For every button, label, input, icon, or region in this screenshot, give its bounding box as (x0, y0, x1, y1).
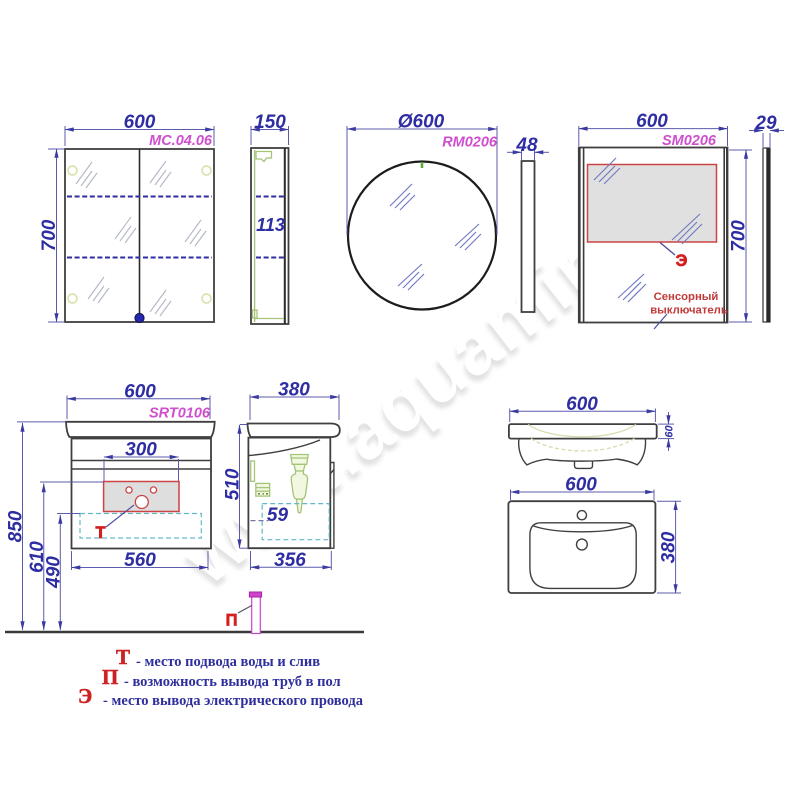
svg-text:SM0206: SM0206 (662, 133, 717, 149)
svg-text:600: 600 (124, 381, 156, 402)
svg-text:- место вывода электрического: - место вывода электрического провода (103, 693, 364, 709)
svg-text:356: 356 (274, 550, 306, 571)
svg-text:П: П (102, 665, 118, 689)
svg-text:300: 300 (125, 439, 157, 460)
svg-text:выключатель: выключатель (650, 305, 728, 317)
svg-text:- место подвода воды и слив: - место подвода воды и слив (136, 654, 320, 670)
svg-text:Ø600: Ø600 (398, 112, 445, 133)
svg-text:490: 490 (43, 556, 64, 589)
svg-text:59: 59 (267, 505, 289, 526)
svg-text:850: 850 (6, 510, 27, 542)
svg-text:600: 600 (124, 112, 156, 133)
svg-text:510: 510 (222, 468, 243, 500)
svg-text:48: 48 (515, 135, 538, 156)
svg-text:380: 380 (278, 379, 310, 400)
svg-text:Э: Э (676, 252, 688, 270)
svg-text:600: 600 (566, 394, 598, 415)
svg-text:700: 700 (39, 219, 60, 251)
svg-text:700: 700 (729, 220, 750, 252)
svg-text:29: 29 (754, 113, 777, 134)
svg-text:600: 600 (565, 474, 597, 495)
svg-text:RM0206: RM0206 (442, 135, 498, 151)
svg-text:MC.04.06: MC.04.06 (149, 133, 213, 149)
svg-text:Э: Э (78, 684, 92, 708)
svg-text:- возможность вывода труб в по: - возможность вывода труб в пол (124, 674, 341, 690)
svg-text:113: 113 (256, 215, 285, 235)
svg-text:SRT0106: SRT0106 (149, 406, 211, 422)
svg-text:600: 600 (636, 111, 668, 132)
svg-text:150: 150 (254, 112, 286, 133)
svg-text:Т: Т (95, 524, 105, 542)
svg-text:560: 560 (124, 550, 156, 571)
svg-text:Сенсорный: Сенсорный (654, 291, 719, 303)
svg-text:60: 60 (664, 425, 676, 438)
svg-text:П: П (226, 612, 238, 630)
svg-text:380: 380 (659, 531, 680, 563)
